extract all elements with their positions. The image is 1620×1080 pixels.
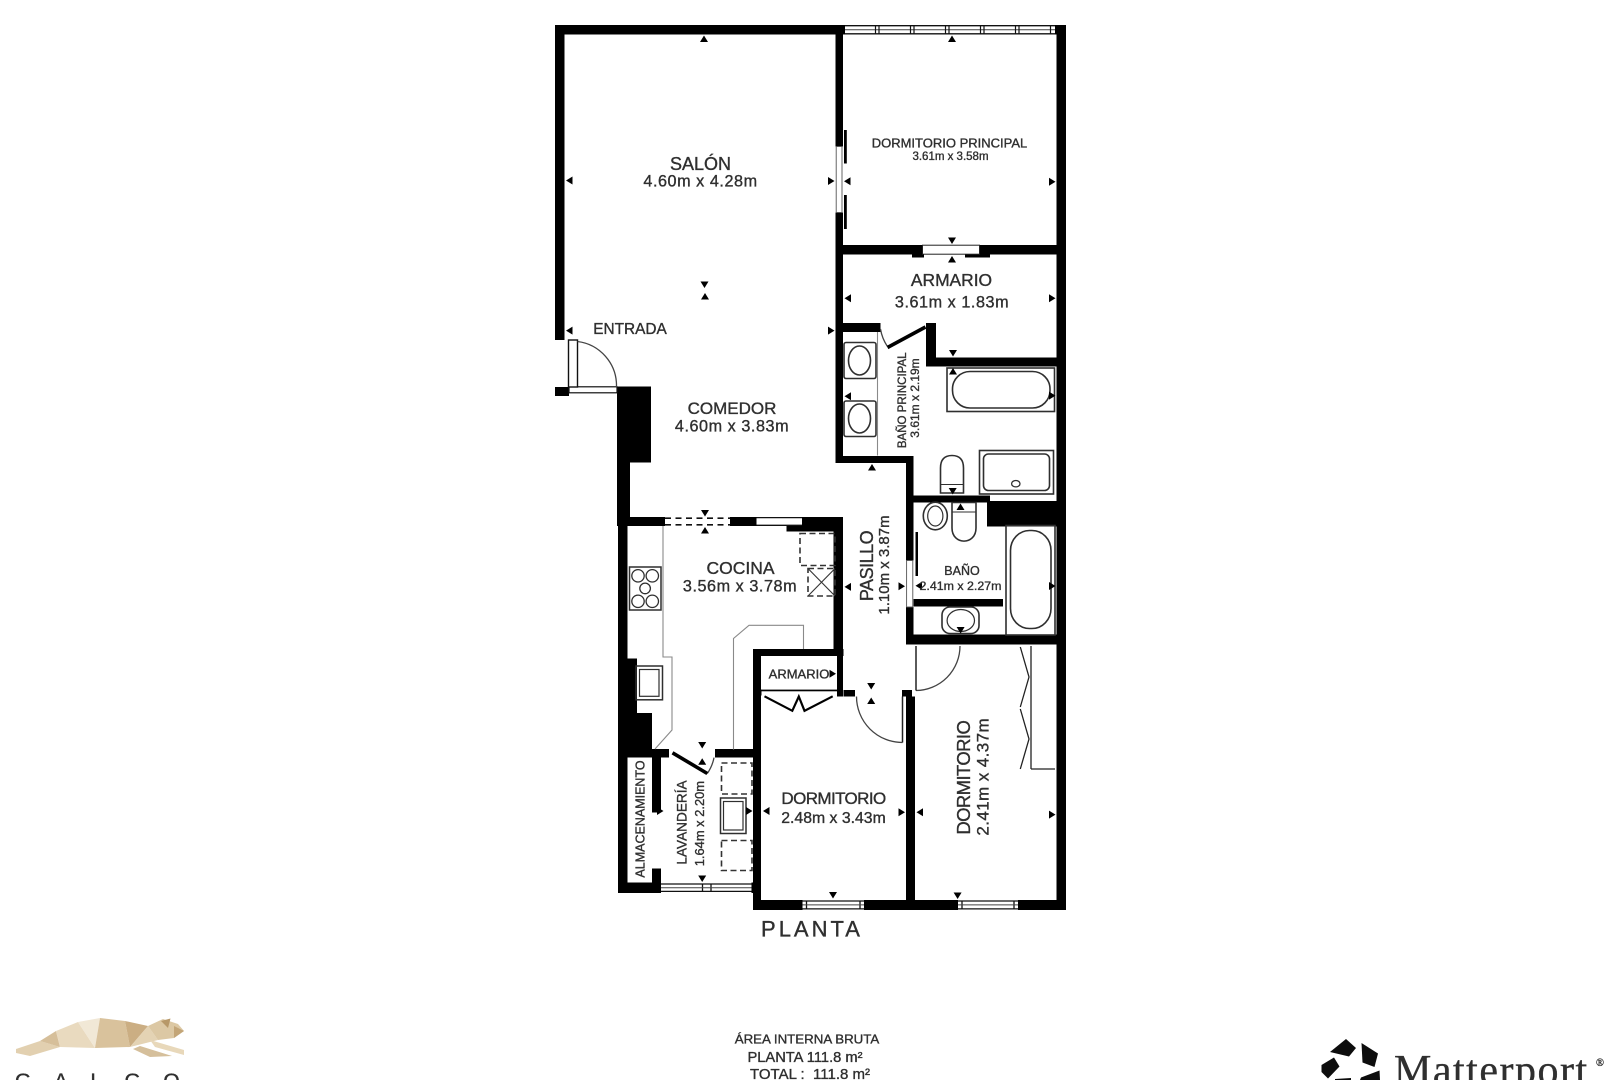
svg-text:3.56m x 3.78m: 3.56m x 3.78m [683,578,797,596]
svg-text:ARMARIO: ARMARIO [769,667,830,682]
svg-text:4.60m x 3.83m: 4.60m x 3.83m [675,418,789,436]
svg-text:LAVANDERÍA: LAVANDERÍA [675,780,690,865]
svg-text:SALÓN: SALÓN [670,153,731,174]
svg-text:DORMITORIO: DORMITORIO [953,721,974,835]
svg-text:2.41m x 2.27m: 2.41m x 2.27m [920,579,1002,593]
svg-text:2.48m x 3.43m: 2.48m x 3.43m [781,810,886,827]
svg-text:GALGO: GALGO [15,1070,202,1080]
svg-text:ARMARIO: ARMARIO [911,270,992,290]
svg-text:®: ® [1596,1058,1604,1069]
svg-text:BAÑO PRINCIPAL: BAÑO PRINCIPAL [896,352,909,448]
svg-text:Matterport: Matterport [1394,1048,1589,1080]
svg-text:4.60m x 4.28m: 4.60m x 4.28m [643,173,757,191]
svg-text:ENTRADA: ENTRADA [593,321,667,338]
svg-text:DORMITORIO: DORMITORIO [781,789,886,808]
svg-text:DORMITORIO PRINCIPAL: DORMITORIO PRINCIPAL [872,136,1028,151]
svg-text:ÁREA INTERNA BRUTA: ÁREA INTERNA BRUTA [735,1032,880,1047]
svg-text:3.61m x 2.19m: 3.61m x 2.19m [908,358,922,437]
svg-text:TOTAL : 111.8 m²: TOTAL : 111.8 m² [750,1066,870,1080]
svg-text:2.41m x 4.37m: 2.41m x 4.37m [973,718,992,836]
svg-text:3.61m x 1.83m: 3.61m x 1.83m [895,294,1009,312]
svg-text:COMEDOR: COMEDOR [688,399,777,418]
svg-text:1.10m x 3.87m: 1.10m x 3.87m [876,515,893,614]
svg-text:COCINA: COCINA [706,558,774,578]
svg-text:PLANTA: PLANTA [761,917,863,942]
svg-text:3.61m x 3.58m: 3.61m x 3.58m [912,151,988,163]
svg-text:1.64m x 2.20m: 1.64m x 2.20m [692,781,707,866]
svg-text:PASILLO: PASILLO [857,530,877,601]
svg-text:ALMACENAMIENTO: ALMACENAMIENTO [634,760,648,877]
svg-text:BAÑO: BAÑO [944,564,980,578]
svg-text:PLANTA 111.8 m²: PLANTA 111.8 m² [747,1050,862,1066]
